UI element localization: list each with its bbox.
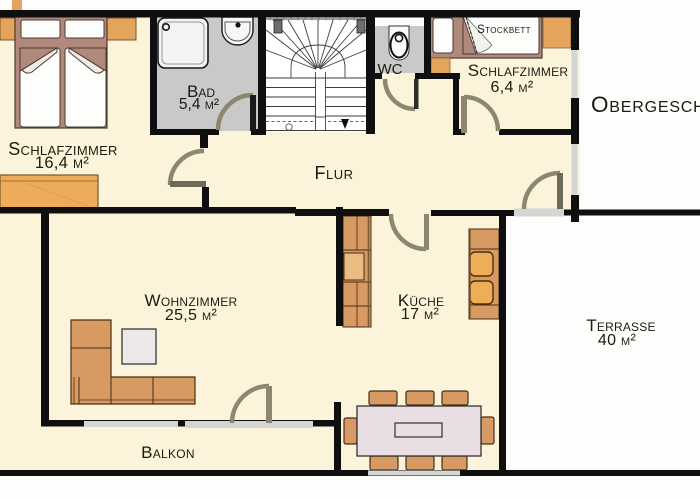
svg-text:Obergeschoss: Obergeschoss [591, 92, 700, 117]
svg-text:6,4 m²: 6,4 m² [491, 79, 534, 96]
svg-text:25,5 m²: 25,5 m² [165, 307, 218, 324]
svg-text:Stockbett: Stockbett [477, 24, 531, 36]
svg-text:40 m²: 40 m² [598, 332, 637, 349]
svg-text:Schlafzimmer: Schlafzimmer [468, 61, 569, 80]
svg-text:Flur: Flur [314, 163, 353, 183]
svg-text:17 m²: 17 m² [401, 306, 440, 323]
svg-text:16,4 m²: 16,4 m² [35, 154, 89, 172]
svg-text:Balkon: Balkon [141, 443, 195, 462]
svg-text:5,4 m²: 5,4 m² [179, 96, 219, 113]
